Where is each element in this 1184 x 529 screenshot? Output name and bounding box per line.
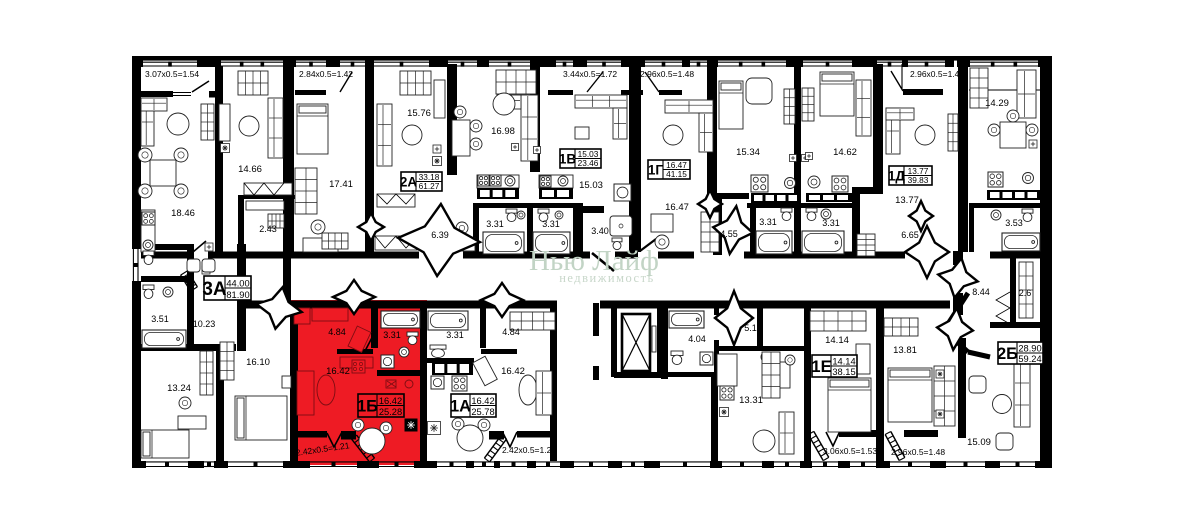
svg-text:16.42: 16.42 xyxy=(501,366,525,377)
svg-text:2Б: 2Б xyxy=(997,345,1018,363)
svg-text:1Б: 1Б xyxy=(357,398,378,416)
svg-text:44.00: 44.00 xyxy=(226,279,249,289)
svg-text:15.76: 15.76 xyxy=(407,108,431,119)
svg-text:15.09: 15.09 xyxy=(967,437,991,448)
svg-text:16.42: 16.42 xyxy=(326,366,350,377)
svg-text:15.03: 15.03 xyxy=(579,180,603,191)
svg-text:14.29: 14.29 xyxy=(985,98,1009,109)
svg-text:4.04: 4.04 xyxy=(688,334,706,344)
svg-text:1Г: 1Г xyxy=(648,162,664,177)
svg-text:3.31: 3.31 xyxy=(822,218,840,228)
svg-text:15.34: 15.34 xyxy=(736,147,760,158)
svg-text:16.98: 16.98 xyxy=(491,126,515,137)
svg-text:4.84: 4.84 xyxy=(502,327,520,337)
svg-text:14.62: 14.62 xyxy=(833,147,857,158)
svg-text:1А: 1А xyxy=(450,398,471,416)
svg-text:10.23: 10.23 xyxy=(193,319,216,329)
svg-text:18.46: 18.46 xyxy=(171,208,195,219)
svg-text:3.51: 3.51 xyxy=(151,314,169,324)
svg-text:13.81: 13.81 xyxy=(893,345,917,356)
svg-text:3.44х0.5=1.72: 3.44х0.5=1.72 xyxy=(563,69,617,79)
svg-text:2.6: 2.6 xyxy=(1019,288,1032,298)
svg-text:13.31: 13.31 xyxy=(739,395,763,406)
svg-text:3.31: 3.31 xyxy=(759,217,777,227)
svg-text:13.77: 13.77 xyxy=(895,195,919,206)
svg-text:3.31: 3.31 xyxy=(486,219,504,229)
svg-text:59.24: 59.24 xyxy=(1018,354,1041,364)
svg-text:13.24: 13.24 xyxy=(167,383,191,394)
svg-text:1В: 1В xyxy=(559,151,577,166)
svg-text:23.46: 23.46 xyxy=(578,158,599,168)
svg-text:3.06х0.5=1.53: 3.06х0.5=1.53 xyxy=(823,446,877,456)
svg-text:1Е: 1Е xyxy=(811,358,831,376)
svg-text:38.15: 38.15 xyxy=(832,367,855,377)
svg-text:3.31: 3.31 xyxy=(383,330,401,340)
svg-text:3.31: 3.31 xyxy=(446,330,464,340)
svg-text:16.42: 16.42 xyxy=(379,396,402,406)
svg-text:недвижимость: недвижимость xyxy=(559,271,655,285)
svg-text:5.13: 5.13 xyxy=(744,323,762,333)
svg-text:25.78: 25.78 xyxy=(471,407,494,417)
svg-text:6.65: 6.65 xyxy=(901,230,919,240)
svg-text:16.47: 16.47 xyxy=(665,202,689,213)
svg-text:2.84х0.5=1.42: 2.84х0.5=1.42 xyxy=(299,69,353,79)
svg-text:81.90: 81.90 xyxy=(226,290,249,300)
svg-text:1Д: 1Д xyxy=(888,168,906,183)
svg-text:14.14: 14.14 xyxy=(825,335,849,346)
svg-text:41.15: 41.15 xyxy=(666,169,687,179)
svg-text:8.44: 8.44 xyxy=(972,287,990,297)
svg-text:28.90: 28.90 xyxy=(1018,344,1041,354)
svg-text:2.96х0.5=1.48: 2.96х0.5=1.48 xyxy=(640,69,694,79)
svg-text:3.31: 3.31 xyxy=(542,219,560,229)
svg-text:3А: 3А xyxy=(202,279,227,300)
svg-text:16.42: 16.42 xyxy=(471,396,494,406)
svg-text:61.27: 61.27 xyxy=(419,181,440,191)
svg-text:3.07х0.5=1.54: 3.07х0.5=1.54 xyxy=(145,69,199,79)
svg-text:17.41: 17.41 xyxy=(329,179,353,190)
svg-text:6.39: 6.39 xyxy=(431,230,449,240)
svg-text:2.96х0.5=1.48: 2.96х0.5=1.48 xyxy=(891,447,945,457)
svg-text:25.28: 25.28 xyxy=(379,407,402,417)
svg-text:2.43: 2.43 xyxy=(259,224,277,234)
svg-text:3.53: 3.53 xyxy=(1005,218,1023,228)
svg-text:16.10: 16.10 xyxy=(246,357,270,368)
svg-text:2.96х0.5=1.48: 2.96х0.5=1.48 xyxy=(910,69,964,79)
svg-text:4.55: 4.55 xyxy=(720,229,738,239)
svg-text:2.42х0.5=1.21: 2.42х0.5=1.21 xyxy=(502,445,556,455)
svg-text:4.84: 4.84 xyxy=(328,327,346,337)
svg-text:39.83: 39.83 xyxy=(908,175,929,185)
svg-text:14.66: 14.66 xyxy=(238,164,262,175)
svg-text:3.40: 3.40 xyxy=(591,226,609,236)
svg-text:14.14: 14.14 xyxy=(832,357,855,367)
svg-text:2А: 2А xyxy=(400,174,418,189)
